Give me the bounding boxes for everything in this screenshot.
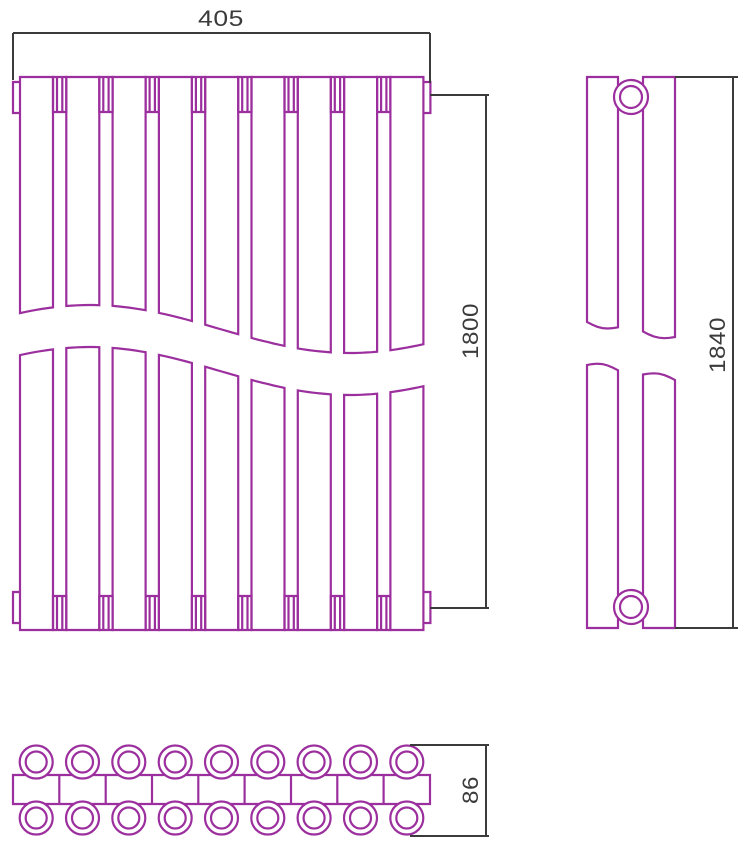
dimension-height-front-label: 1800 xyxy=(458,303,483,359)
front-slat-bottom xyxy=(113,348,146,630)
front-slat-bottom xyxy=(390,386,423,630)
front-slat-bottom xyxy=(66,347,99,630)
dimension-width: 405 xyxy=(13,6,430,83)
front-slat-top xyxy=(298,77,331,352)
side-view xyxy=(587,77,675,628)
front-slat-top xyxy=(252,77,285,346)
front-connector-top xyxy=(53,77,66,112)
front-connector-bottom xyxy=(146,596,159,630)
front-connector-top xyxy=(99,77,112,112)
front-connector-bottom xyxy=(192,596,205,630)
front-slat-top xyxy=(344,77,377,353)
front-slat-top xyxy=(390,77,423,350)
dimension-height-side: 1840 xyxy=(675,76,738,629)
front-connector-top xyxy=(331,77,344,112)
front-connector-bottom xyxy=(53,596,66,630)
front-slat-top xyxy=(113,77,146,310)
dimension-width-lines xyxy=(13,33,430,83)
front-slat-bottom xyxy=(20,349,53,630)
top-view xyxy=(13,746,430,835)
dimension-height-front: 1800 xyxy=(430,94,489,609)
front-connector-bottom xyxy=(331,596,344,630)
front-slat-bottom xyxy=(159,355,192,630)
front-connector-top xyxy=(146,77,159,112)
front-view xyxy=(13,77,430,630)
side-channel-top xyxy=(587,77,618,329)
front-slat-bottom xyxy=(344,394,377,630)
front-connector-top xyxy=(377,77,390,112)
dimension-height-side-label: 1840 xyxy=(705,317,730,373)
front-slat-top xyxy=(159,77,192,321)
front-connector-top xyxy=(238,77,251,112)
technical-drawing: 405 1800 1840 86 xyxy=(0,0,750,850)
front-slat-top xyxy=(205,77,238,334)
front-connector-top xyxy=(285,77,298,112)
front-slat-bottom xyxy=(298,390,331,630)
dimension-width-label: 405 xyxy=(198,6,244,31)
front-slat-bottom xyxy=(252,380,285,630)
front-connector-bottom xyxy=(377,596,390,630)
side-channel-bottom xyxy=(643,373,675,628)
side-channel-top xyxy=(643,77,675,338)
front-slat-bottom xyxy=(205,367,238,630)
front-slat-top xyxy=(20,77,53,313)
front-connector-top xyxy=(192,77,205,112)
front-connector-bottom xyxy=(285,596,298,630)
front-connector-bottom xyxy=(99,596,112,630)
dimension-depth-label: 86 xyxy=(458,776,483,804)
front-connector-bottom xyxy=(238,596,251,630)
side-channel-bottom xyxy=(587,364,618,628)
front-slat-top xyxy=(66,77,99,306)
